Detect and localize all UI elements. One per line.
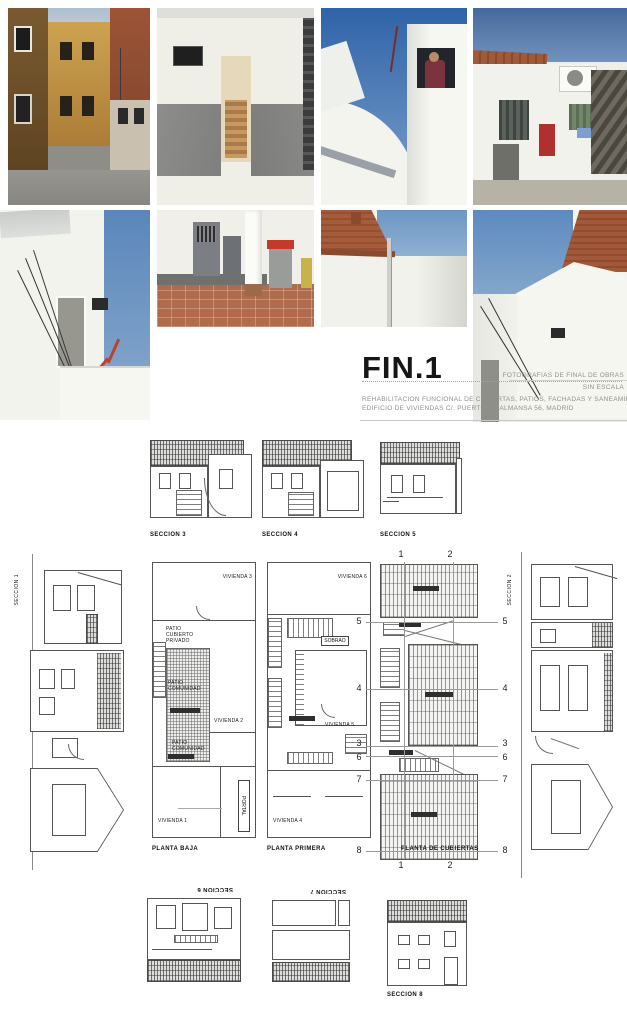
section-2-drawing: SECCION 2 (505, 550, 625, 882)
axis-number: 1 (394, 860, 408, 870)
window (118, 108, 128, 124)
brick-building (110, 8, 150, 100)
window (53, 585, 71, 611)
section-line-6 (366, 756, 498, 757)
window (444, 931, 456, 947)
section-caption: SECCION 7 (310, 888, 346, 894)
axis-number: 3 (352, 738, 366, 748)
title-rule-dotted (362, 381, 622, 382)
section-body (147, 898, 241, 960)
section-caption: SECCION 4 (262, 532, 298, 538)
section-line-8 (366, 851, 498, 852)
section-5-drawing: SECCION 5 (378, 440, 466, 540)
door (444, 957, 458, 985)
section-caption: SECCION 3 (150, 532, 186, 538)
portal-label: PORTAL (238, 780, 250, 832)
plan-caption: PLANTA BAJA (152, 846, 198, 852)
bin-lid (267, 240, 294, 249)
micro-label-chip (170, 708, 200, 713)
section-caption: SECCION 8 (387, 992, 423, 998)
facade (320, 460, 364, 518)
street (8, 170, 150, 205)
axis-number: 4 (352, 683, 366, 693)
room (182, 903, 208, 931)
section-caption: SECCION 6 (197, 886, 233, 892)
window (77, 585, 95, 611)
room-label: PATIO COMUNIDAD (172, 740, 206, 752)
photo-white-tower-person (321, 8, 467, 205)
room-label: VIVIENDA 4 (273, 818, 302, 824)
window (159, 473, 171, 489)
gable-window (551, 780, 581, 834)
window (568, 665, 588, 711)
stair (153, 642, 166, 698)
floor (157, 284, 314, 327)
white-wing (321, 41, 365, 115)
picture-frame (173, 46, 203, 66)
axis-number: 5 (352, 616, 366, 626)
roof-hatch (387, 900, 467, 922)
title-block-rule (360, 420, 627, 421)
room (338, 900, 350, 926)
window (82, 42, 94, 60)
wall (325, 796, 363, 797)
window (327, 471, 359, 511)
room (214, 907, 232, 929)
stair (176, 490, 202, 516)
section-line-4 (366, 689, 498, 690)
window (14, 94, 32, 124)
wall (220, 766, 221, 838)
axis-number: 8 (352, 845, 366, 855)
stair (268, 618, 282, 668)
window (271, 473, 283, 489)
roof-hatch (97, 653, 121, 729)
room-label: PATIO COMUNIDAD (168, 680, 200, 692)
red-door (539, 124, 555, 156)
axis-number: 7 (352, 774, 366, 784)
section-1-drawing: SECCION 1 (12, 552, 142, 872)
person (425, 60, 445, 88)
window (398, 959, 410, 969)
stair-edge (296, 651, 304, 725)
facade (387, 922, 467, 986)
axis-number: 2 (443, 860, 457, 870)
room (156, 905, 176, 929)
stair (174, 935, 218, 943)
wall (267, 614, 371, 615)
project-description-2: EDIFICIO DE VIVIENDAS C/. PUERTO DE ALMA… (362, 405, 574, 412)
party-wall (456, 458, 462, 514)
floor (157, 160, 314, 205)
meter-box (551, 328, 565, 338)
laundry (577, 128, 591, 138)
wheelie-bin (269, 246, 292, 288)
stair (380, 648, 400, 688)
window (568, 577, 588, 607)
wall (267, 770, 371, 771)
section-caption: SECCION 5 (380, 532, 416, 538)
axis-number: 2 (443, 549, 457, 559)
photo-street-facades (8, 8, 150, 205)
stair (380, 702, 400, 742)
gable-window (52, 784, 86, 836)
title-scale: SIN ESCALA (583, 384, 624, 391)
section-3-drawing: SECCION 3 (148, 438, 262, 542)
stair (591, 70, 627, 174)
photo-patio-brick-gable (321, 210, 467, 327)
drawing-sheet: FIN.1 FOTOGRAFIAS DE FINAL DE OBRAS SIN … (0, 0, 627, 1024)
room-label: VIVIENDA 5 (325, 722, 354, 728)
column-base (245, 284, 262, 296)
wall (273, 796, 311, 797)
window (39, 697, 55, 715)
ceiling-shadow (157, 8, 314, 18)
section-caption: SECCION 2 (507, 574, 513, 605)
window (60, 96, 72, 116)
title-caption: FOTOGRAFIAS DE FINAL DE OBRAS (503, 372, 624, 379)
person-head (429, 52, 439, 62)
right-facade (110, 100, 150, 178)
wall (152, 766, 256, 767)
section-line-3 (366, 746, 498, 747)
wall (210, 732, 256, 733)
window (61, 669, 75, 689)
section-line-7 (366, 780, 498, 781)
roof-hatch (272, 962, 350, 982)
middle-band (531, 622, 613, 648)
downpipe (387, 238, 391, 327)
stair-at-end (225, 100, 247, 158)
green-window (569, 104, 591, 130)
main-block (30, 650, 124, 732)
facade (380, 464, 456, 514)
section-line-1 (404, 562, 405, 858)
ground (473, 180, 627, 205)
ground-line (521, 552, 522, 878)
photo-courtyard-stairs (473, 8, 627, 205)
micro-label-chip (289, 716, 315, 721)
meter-box (92, 298, 108, 310)
hatch-strip (86, 614, 98, 644)
window (134, 108, 144, 124)
window (418, 935, 430, 945)
title-block: FIN.1 FOTOGRAFIAS DE FINAL DE OBRAS SIN … (360, 348, 624, 422)
window (540, 629, 556, 643)
plan-planta-cubiertas: PLANTA DE CUBIERTAS (375, 552, 505, 874)
room-label: VIVIENDA 1 (158, 818, 187, 824)
room-label: PATIO CUBIERTO PRIVADO (166, 626, 202, 644)
section-4-drawing: SECCION 4 (260, 438, 374, 542)
window (418, 959, 430, 969)
yellow-object (301, 258, 312, 288)
window-grille (499, 100, 529, 140)
roof-hatch (147, 960, 241, 982)
window (391, 475, 403, 493)
stair (287, 618, 333, 638)
room-label: VIVIENDA 3 (223, 574, 252, 580)
micro-label-chip (168, 754, 194, 759)
ac-fan (567, 70, 583, 86)
photo-patio-doors-bin (157, 210, 314, 327)
hatch-strip (604, 653, 612, 731)
micro-text (178, 808, 222, 809)
room (272, 930, 350, 960)
window (82, 96, 94, 116)
hatch-strip (592, 623, 612, 647)
section-6-drawing: SECCION 6 (145, 886, 245, 992)
section-line-2 (453, 562, 454, 858)
window (540, 665, 560, 711)
section-caption: SECCION 1 (14, 574, 20, 605)
section-8-drawing: SECCION 8 (385, 900, 471, 1004)
window (14, 26, 32, 52)
plan-caption: PLANTA PRIMERA (267, 846, 326, 852)
room-label: VIVIENDA 6 (338, 574, 367, 580)
antenna (390, 26, 398, 72)
window (398, 935, 410, 945)
street-light (120, 48, 121, 100)
room (272, 900, 336, 926)
photo-interior-corridor (157, 8, 314, 205)
floor-line (152, 949, 212, 950)
stair (268, 678, 282, 728)
step-line (383, 501, 399, 502)
micro-label-chip (411, 812, 437, 817)
section-line-5 (366, 622, 498, 623)
axis-number: 1 (394, 549, 408, 559)
step-line (387, 497, 443, 498)
sobrao-label: SOBRAO (321, 636, 349, 646)
grey-panel (223, 236, 241, 276)
door-grille (197, 226, 216, 242)
window (60, 42, 72, 60)
stair-line (551, 738, 580, 749)
chimney (351, 212, 361, 224)
wall-shadow (417, 256, 467, 327)
section-7-drawing: SECCION 7 (268, 888, 354, 992)
window (179, 473, 191, 489)
plan-planta-primera: VIVIENDA 6 SOBRAO VIVIENDA 5 VIVIENDA 4 … (265, 556, 377, 858)
parapet (60, 368, 150, 420)
wall (152, 620, 256, 621)
stair (288, 492, 314, 516)
window (413, 475, 425, 493)
project-description-1: REHABILITACION FUNCIONAL DE CUBIERTAS, P… (362, 396, 627, 403)
window (39, 669, 55, 689)
window (291, 473, 303, 489)
micro-label-chip (425, 692, 453, 697)
roof-area (380, 564, 478, 618)
window (540, 577, 560, 607)
axis-number: 6 (352, 752, 366, 762)
photo-white-wall-cables (0, 210, 150, 420)
main-block (531, 650, 613, 732)
micro-label-chip (413, 586, 439, 591)
room-label: VIVIENDA 2 (214, 718, 243, 724)
plan-planta-baja: VIVIENDA 3 PATIO CUBIERTO PRIVADO PATIO … (150, 556, 262, 858)
gate-right (303, 8, 314, 170)
roof-hatch (380, 442, 460, 464)
micro-label-chip (389, 750, 413, 755)
stair (287, 752, 333, 764)
